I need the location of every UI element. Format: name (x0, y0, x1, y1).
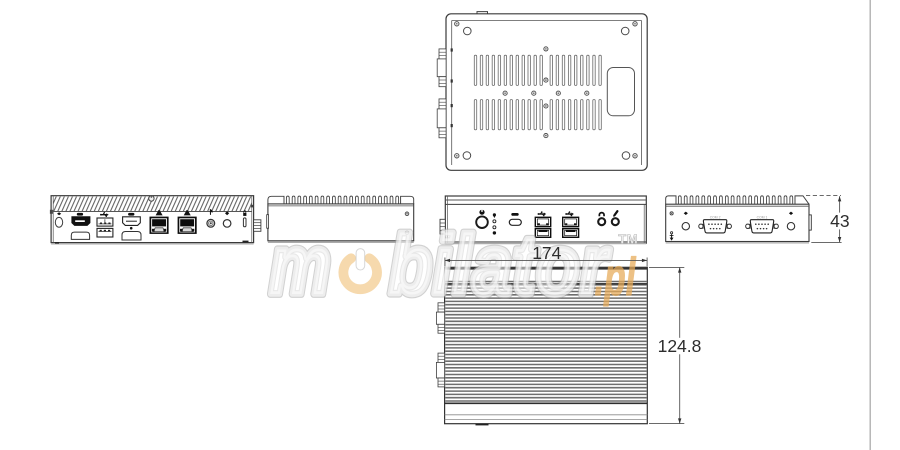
svg-text:TM: TM (618, 232, 638, 247)
svg-text:43: 43 (830, 211, 849, 231)
svg-text:174: 174 (532, 243, 561, 263)
svg-text:COM 2: COM 2 (710, 216, 721, 220)
svg-text:m: m (269, 218, 331, 312)
svg-text:bilator: bilator (389, 218, 612, 312)
svg-text:COM 1: COM 1 (757, 216, 768, 220)
svg-text:124.8: 124.8 (658, 336, 702, 356)
svg-text:.pl: .pl (595, 248, 637, 307)
